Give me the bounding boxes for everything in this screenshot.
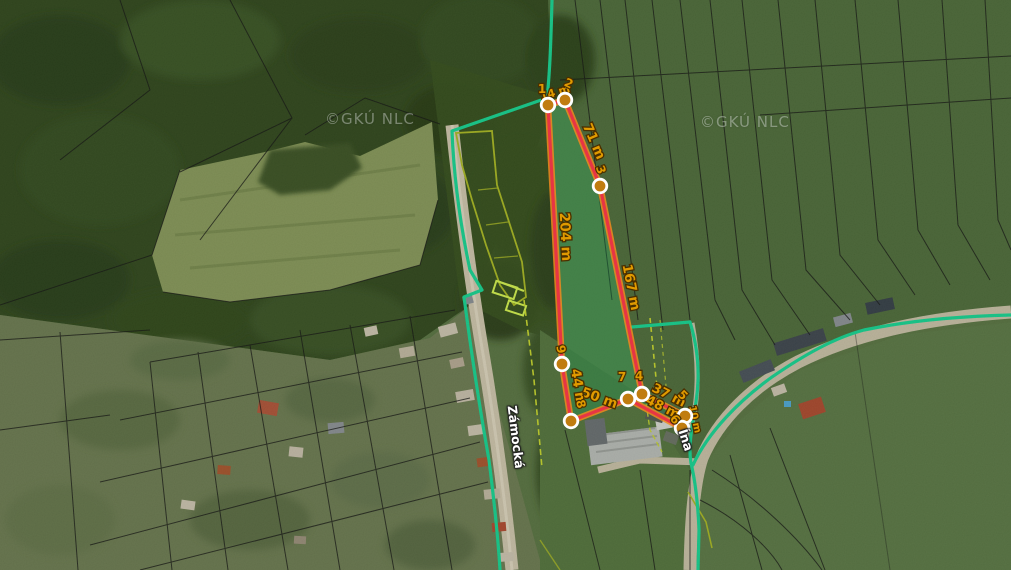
vertex-marker-9[interactable] — [555, 357, 569, 371]
vertex-marker-1[interactable] — [541, 98, 555, 112]
vertex-marker-3[interactable] — [593, 179, 607, 193]
vertex-marker-2[interactable] — [558, 93, 572, 107]
map-canvas[interactable]: 14 m71 m167 m37 m10 m48 m50 m44 m204 m12… — [0, 0, 1011, 570]
vertex-marker-7[interactable] — [621, 392, 635, 406]
vertex-number-label: 7 — [618, 370, 626, 384]
vertex-number-label: 1 — [538, 82, 546, 96]
segment-length-label: 204 m — [556, 212, 575, 261]
measurement-overlay: 14 m71 m167 m37 m10 m48 m50 m44 m204 m12… — [0, 0, 1011, 570]
vertex-number-label: 3 — [593, 163, 609, 176]
vertex-marker-4[interactable] — [635, 387, 649, 401]
vertex-marker-8[interactable] — [564, 414, 578, 428]
vertex-number-label: 4 — [635, 369, 643, 383]
